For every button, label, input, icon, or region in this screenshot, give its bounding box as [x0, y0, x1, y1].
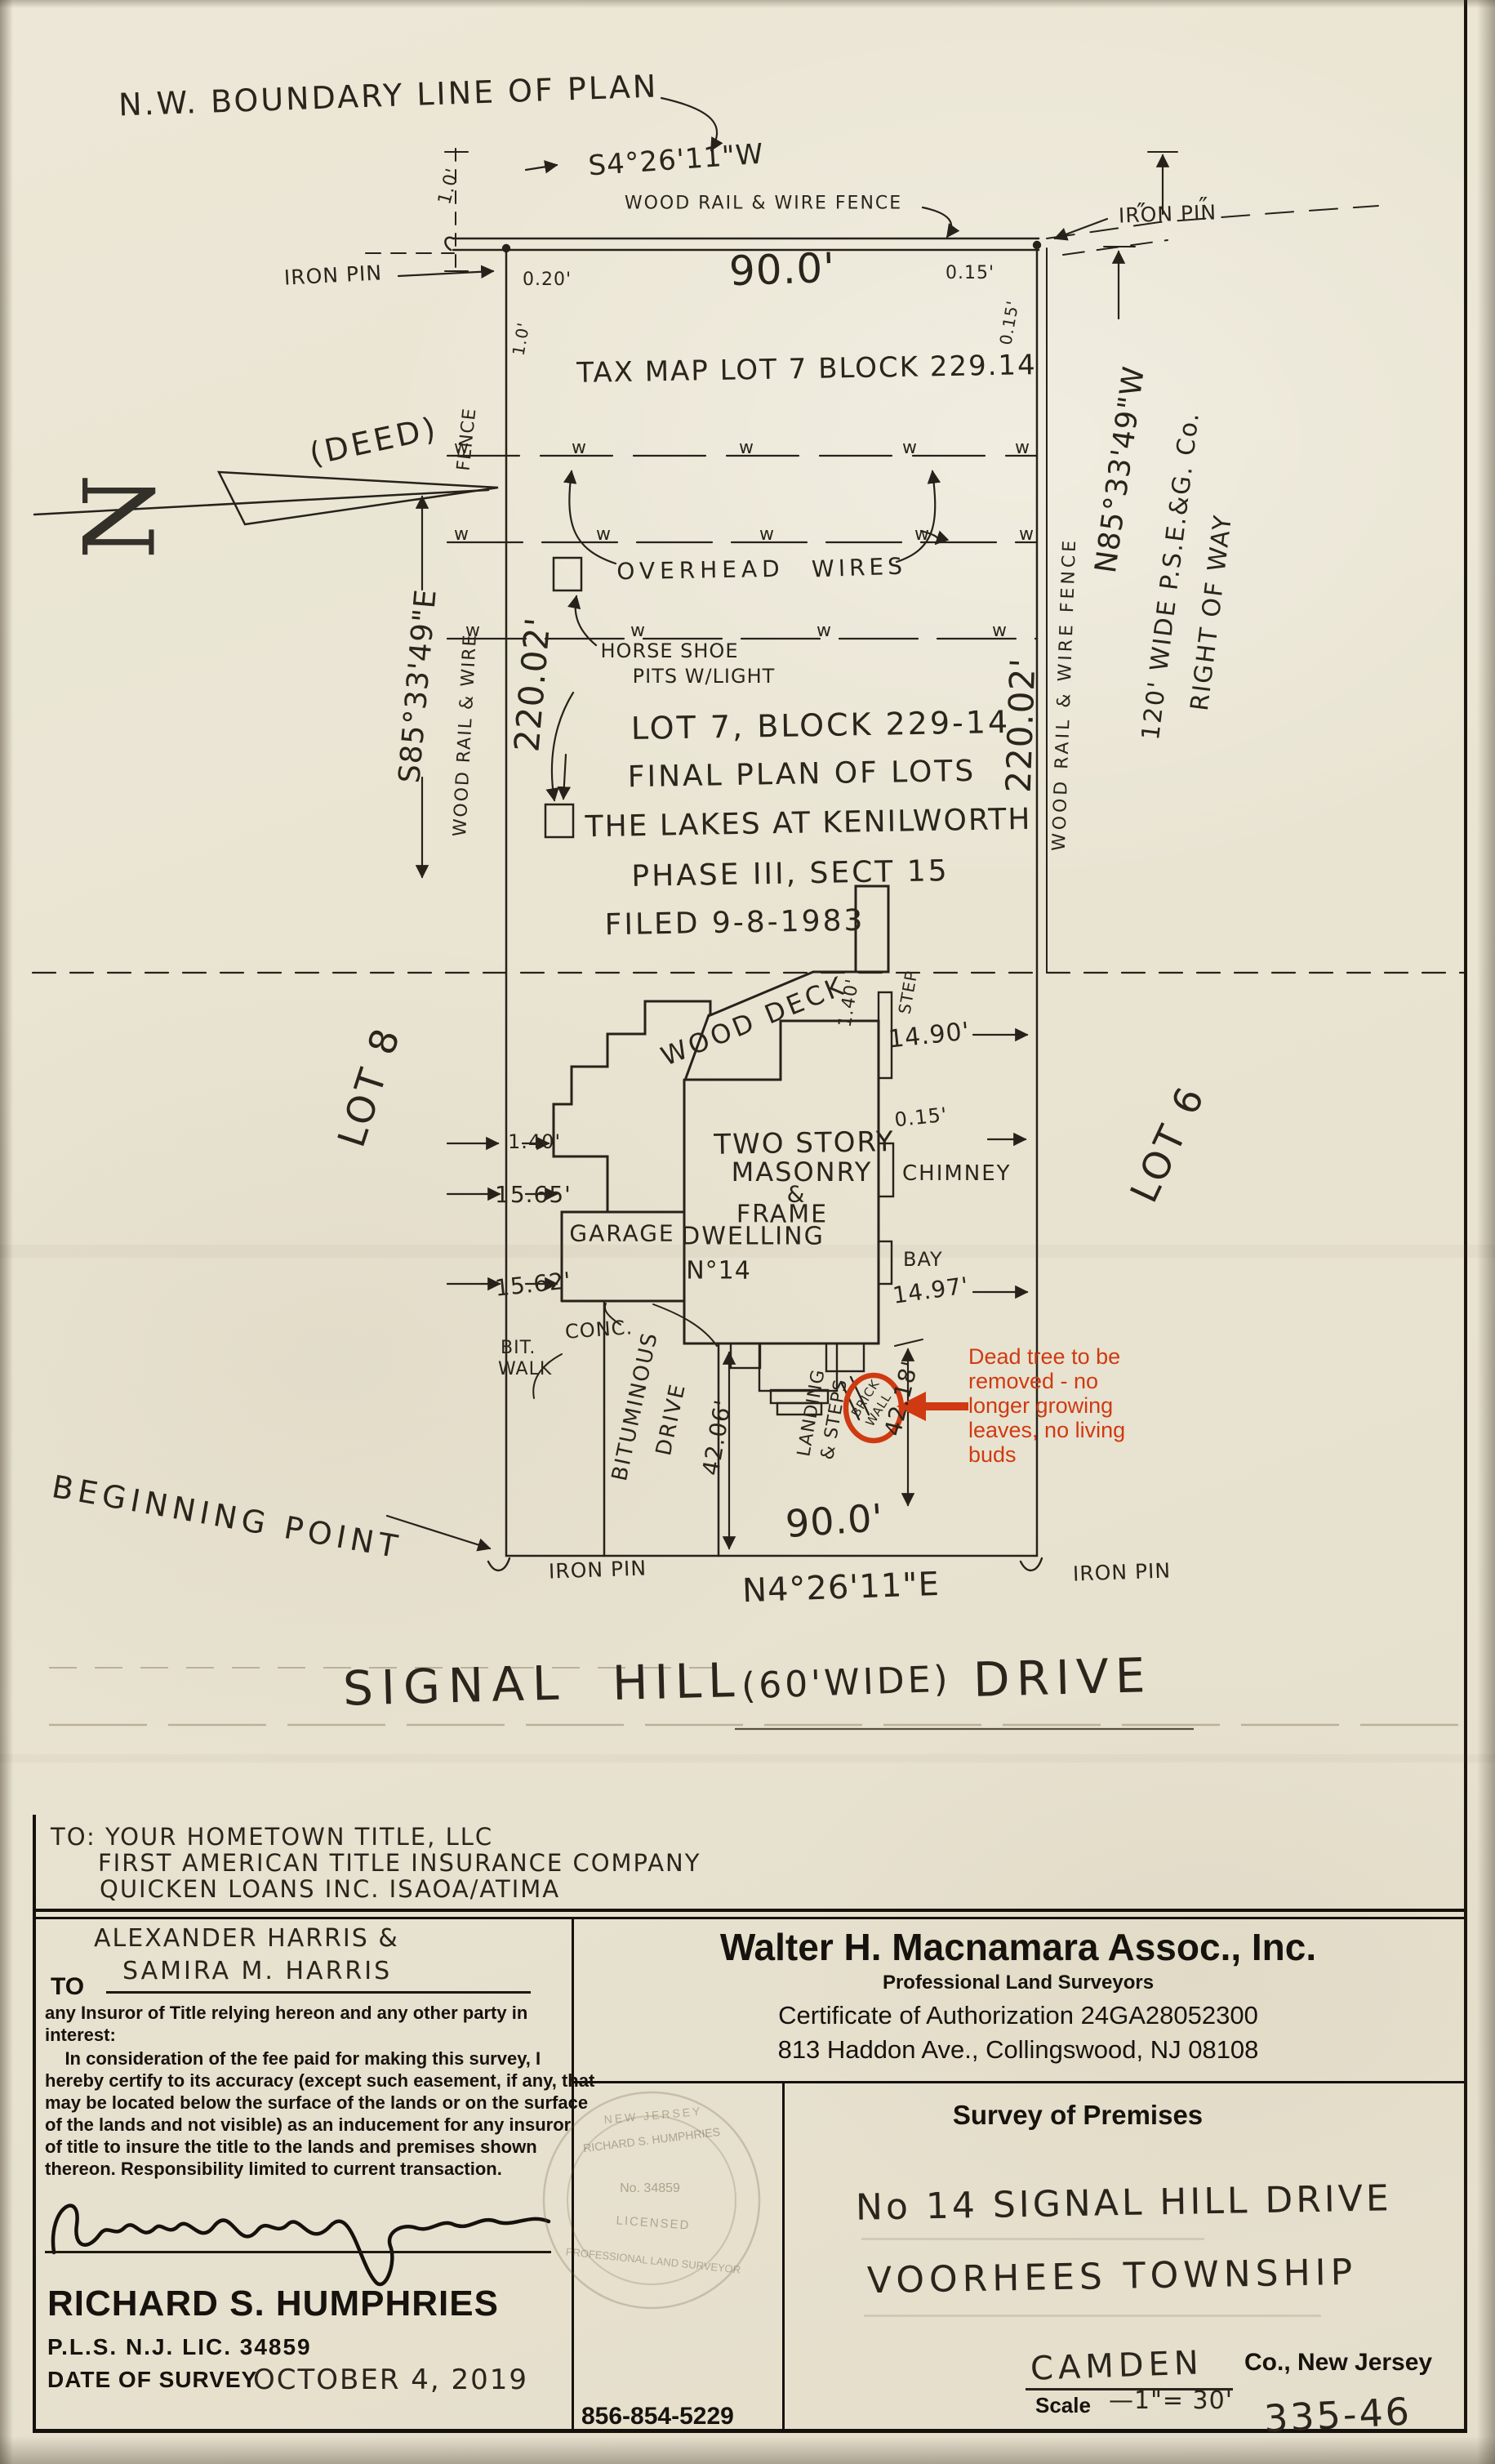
wire-mark: w — [739, 438, 754, 458]
border-left — [33, 1815, 36, 2432]
dim-140-left-label: 1.40' — [508, 1130, 561, 1153]
premises-address-line-1: No 14 SIGNAL HILL DRIVE — [856, 2177, 1393, 2228]
dim-90-bottom-label: 90.0' — [784, 1495, 885, 1546]
annotation-line: removed - no — [968, 1369, 1098, 1394]
to-label: TO — [51, 1973, 84, 2001]
bit-walk-label-1: BIT. — [501, 1338, 536, 1358]
border-bottom — [33, 2429, 1467, 2433]
divider-seal-cell — [782, 2081, 785, 2429]
cert-body-line: may be located below the surface of the … — [45, 2092, 588, 2114]
firm-cert: Certificate of Authorization 24GA2805230… — [778, 2001, 1258, 2030]
wire-mark: w — [572, 438, 587, 458]
signature-underline — [45, 2251, 551, 2253]
scale-label: Scale — [1035, 2393, 1091, 2418]
street-name-part-1: SIGNAL — [342, 1655, 567, 1716]
job-number: 335-46 — [1263, 2389, 1413, 2440]
premises-address-line-2: VOORHEES TOWNSHIP — [867, 2252, 1358, 2301]
paper-crease — [0, 1245, 1495, 1258]
title-block-border — [33, 1909, 1466, 1912]
house-label-6: N°14 — [686, 1257, 751, 1285]
street-name-part-3: (60'WIDE) — [741, 1659, 951, 1708]
recipient-line-1: TO: YOUR HOMETOWN TITLE, LLC — [51, 1823, 493, 1851]
ditto-mark-1: ″ — [1137, 198, 1146, 227]
horse-shoe-label-2: PITS W/LIGHT — [633, 665, 776, 688]
firm-phone: 856-854-5229 — [581, 2403, 734, 2431]
premises-county-suffix: Co., New Jersey — [1244, 2349, 1432, 2377]
scale-value: —1"= 30' — [1109, 2386, 1233, 2415]
client-name-1: ALEXANDER HARRIS & — [94, 1924, 399, 1953]
wire-mark: w — [1015, 438, 1030, 458]
cert-body-line: hereby certify to its accuracy (except s… — [45, 2070, 594, 2092]
paper-crease — [0, 1754, 1495, 1762]
firm-name: Walter H. Macnamara Assoc., Inc. — [720, 1925, 1316, 1969]
premises-county: CAMDEN — [1030, 2344, 1204, 2387]
recipient-line-2: FIRST AMERICAN TITLE INSURANCE COMPANY — [98, 1849, 701, 1877]
lot-note-line-5: FILED 9-8-1983 — [604, 904, 865, 942]
lot-note-line-4: PHASE III, SECT 15 — [631, 854, 950, 893]
street-name-part-4: DRIVE — [972, 1647, 1152, 1708]
annotation-line: Dead tree to be — [968, 1344, 1120, 1370]
overhead-wire-lines — [447, 456, 1037, 639]
premises-heading: Survey of Premises — [953, 2100, 1203, 2131]
wire-mark: w — [816, 621, 832, 641]
garage-label: GARAGE — [569, 1220, 674, 1247]
firm-address: 813 Haddon Ave., Collingswood, NJ 08108 — [778, 2035, 1259, 2065]
wire-mark: w — [454, 524, 469, 545]
wire-mark: w — [596, 524, 612, 545]
property-boundary — [506, 248, 1047, 1556]
seal-number: No. 34859 — [620, 2181, 680, 2196]
dim-1565-label: 15.65' — [495, 1181, 572, 1208]
border-right — [1464, 0, 1467, 2432]
street-name-part-2: HILL — [612, 1652, 741, 1711]
cert-body-line: of title to insure the title to the land… — [45, 2137, 537, 2158]
dim-015-h-label: 0.15' — [945, 263, 994, 283]
bearing-bottom-label: N4°26'11"E — [741, 1566, 940, 1610]
bit-walk-label-2: WALK — [498, 1359, 552, 1379]
dim-90-top-label: 90.0' — [728, 244, 836, 296]
surveyor-license: P.L.S. N.J. LIC. 34859 — [47, 2334, 312, 2360]
lot-note-line-1: LOT 7, BLOCK 229-14 — [631, 704, 1011, 746]
cert-body-line: In consideration of the fee paid for mak… — [45, 2048, 541, 2070]
title-block-border-2 — [33, 1917, 1466, 1919]
wire-mark: w — [759, 524, 775, 545]
client-underline — [106, 1991, 531, 1994]
annotation-line: leaves, no living — [968, 1418, 1125, 1443]
firm-subtitle: Professional Land Surveyors — [883, 1972, 1154, 1994]
horse-shoe-label-1: HORSE SHOE — [601, 639, 739, 662]
wire-mark: w — [1019, 524, 1034, 545]
overhead-label: OVERHEAD — [616, 555, 785, 586]
wire-mark: w — [465, 621, 481, 641]
wire-mark: w — [992, 621, 1008, 641]
cert-body-line: interest: — [45, 2025, 116, 2046]
cert-body-line: of the lands and not visible) as an indu… — [45, 2114, 571, 2136]
north-letter: N — [65, 473, 178, 559]
dim-020-label: 0.20' — [523, 270, 572, 290]
iron-pin-bottom-left-label: IRON PIN — [548, 1556, 647, 1583]
annotation-line: longer growing — [968, 1393, 1113, 1419]
recipient-line-3: QUICKEN LOANS INC. ISAOA/ATIMA — [100, 1875, 560, 1903]
date-of-survey-value: OCTOBER 4, 2019 — [253, 2364, 528, 2396]
dim-220-right-label: 220.02' — [999, 657, 1043, 793]
client-name-2: SAMIRA M. HARRIS — [122, 1957, 392, 1985]
survey-document: N.W. BOUNDARY LINE OF PLAN S4°26'11"W WO… — [0, 0, 1495, 2464]
ditto-mark-2: ″ — [1199, 193, 1208, 221]
conc-label: CONC. — [564, 1316, 634, 1343]
wire-mark: w — [902, 438, 918, 458]
premises-underline-1 — [861, 2238, 1204, 2240]
wire-mark: w — [454, 438, 469, 458]
fence-top-label: WOOD RAIL & WIRE FENCE — [625, 194, 902, 214]
chimney-label: CHIMNEY — [902, 1161, 1012, 1186]
wire-mark: w — [630, 621, 646, 641]
lot-note-line-2: FINAL PLAN OF LOTS — [627, 755, 976, 794]
surveyor-name: RICHARD S. HUMPHRIES — [47, 2284, 499, 2324]
premises-underline-2 — [864, 2315, 1321, 2317]
cert-body-line: any Insuror of Title relying hereon and … — [45, 2003, 527, 2024]
wire-mark: w — [914, 524, 930, 545]
date-of-survey-label: DATE OF SURVEY — [47, 2367, 257, 2393]
iron-pin-bottom-right-label: IRON PIN — [1072, 1558, 1171, 1585]
wires-label: WIRES — [812, 552, 907, 582]
annotation-line: buds — [968, 1442, 1017, 1468]
